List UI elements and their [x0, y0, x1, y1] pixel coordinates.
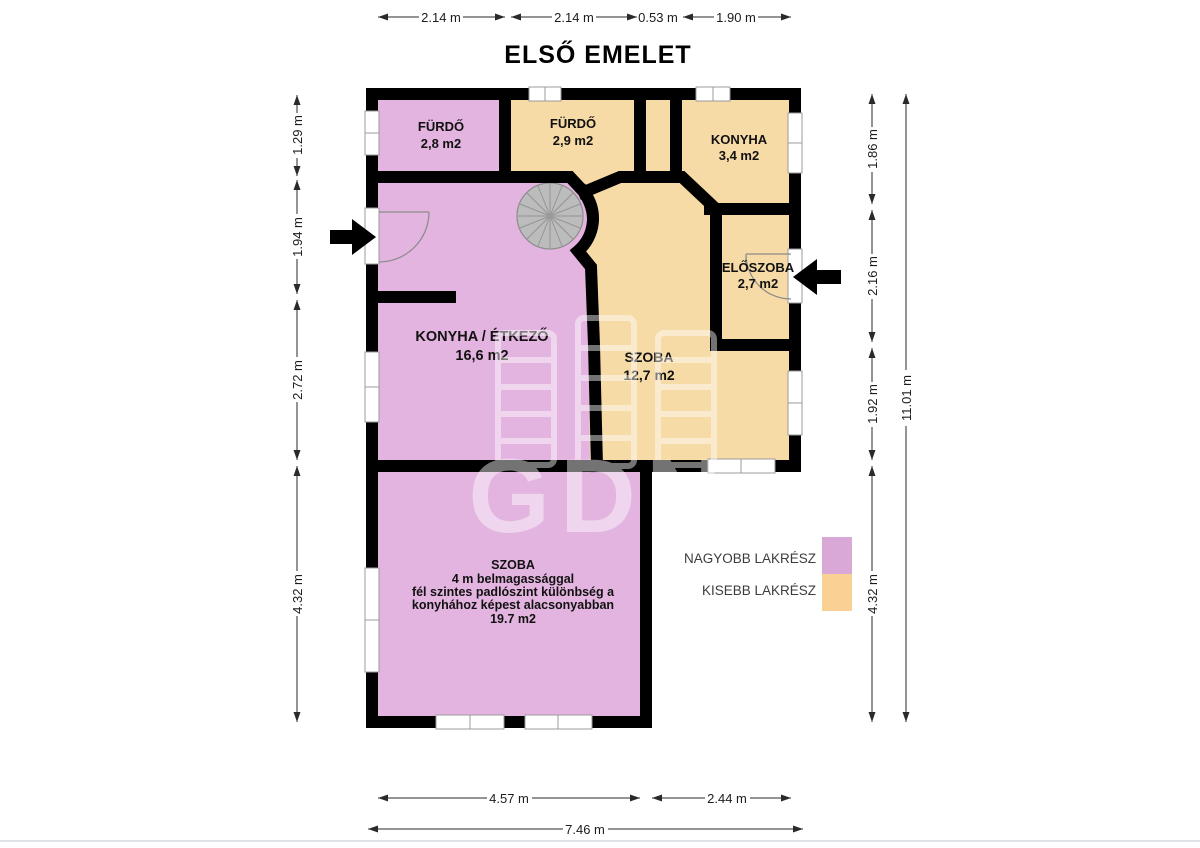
- dim-right-3: 1.92 m: [865, 384, 880, 424]
- dimensions-left: 1.29 m 1.94 m 2.72 m 4.32 m: [289, 95, 305, 722]
- dim-right-1: 1.86 m: [865, 129, 880, 169]
- dim-bottom-total: 7.46 m: [565, 822, 605, 837]
- dimensions-right: 1.86 m 2.16 m 1.92 m 4.32 m 11.01 m: [864, 94, 914, 722]
- room-label-also-szoba-2: 4 m belmagassággal: [452, 572, 574, 586]
- dim-top-4: 1.90 m: [716, 10, 756, 25]
- floorplan-page: FÜRDŐ 2,8 m2 FÜRDŐ 2,9 m2 KONYHA 3,4 m2 …: [0, 0, 1200, 848]
- room-label-konyha-area: 3,4 m2: [719, 148, 759, 163]
- room-label-furdo1-name: FÜRDŐ: [418, 119, 464, 134]
- spiral-staircase: [517, 183, 583, 249]
- room-label-eloszoba-name: ELŐSZOBA: [722, 260, 795, 275]
- dim-left-3: 2.72 m: [290, 360, 305, 400]
- dim-bottom-1: 4.57 m: [489, 791, 529, 806]
- legend-swatch-smaller: [822, 574, 852, 611]
- floorplan-canvas: FÜRDŐ 2,8 m2 FÜRDŐ 2,9 m2 KONYHA 3,4 m2 …: [0, 0, 1200, 848]
- dim-right-4: 4.32 m: [865, 574, 880, 614]
- room-label-konyha-name: KONYHA: [711, 132, 768, 147]
- legend-label-larger: NAGYOBB LAKRÉSZ: [684, 551, 816, 566]
- dim-right-2: 2.16 m: [865, 256, 880, 296]
- dim-top-2: 2.14 m: [554, 10, 594, 25]
- room-label-also-szoba-4: konyhához képest alacsonyabban: [412, 598, 614, 612]
- dim-left-1: 1.29 m: [290, 115, 305, 155]
- dim-top-3: 0.53 m: [638, 10, 678, 25]
- legend-label-smaller: KISEBB LAKRÉSZ: [702, 583, 816, 598]
- room-label-eloszoba-area: 2,7 m2: [738, 276, 778, 291]
- room-label-furdo1-area: 2,8 m2: [421, 136, 461, 151]
- watermark-text: GDN: [468, 438, 731, 555]
- room-label-furdo2-name: FÜRDŐ: [550, 116, 596, 131]
- room-label-furdo2-area: 2,9 m2: [553, 133, 593, 148]
- room-label-also-szoba-1: SZOBA: [491, 558, 535, 572]
- legend-swatch-larger: [822, 537, 852, 574]
- dimensions-bottom: 4.57 m 2.44 m 7.46 m: [368, 790, 803, 837]
- page-title: ELSŐ EMELET: [504, 40, 691, 69]
- room-label-also-szoba-3: fél szintes padlószint különbség a: [412, 585, 615, 599]
- dim-top-1: 2.14 m: [421, 10, 461, 25]
- dim-right-total: 11.01 m: [899, 375, 914, 421]
- dimensions-top: 2.14 m 2.14 m 0.53 m 1.90 m: [378, 9, 791, 25]
- dim-left-2: 1.94 m: [290, 217, 305, 257]
- room-label-also-szoba-5: 19.7 m2: [490, 612, 536, 626]
- room-furdo1-floor: [366, 88, 511, 182]
- dim-left-4: 4.32 m: [290, 574, 305, 614]
- dim-bottom-2: 2.44 m: [707, 791, 747, 806]
